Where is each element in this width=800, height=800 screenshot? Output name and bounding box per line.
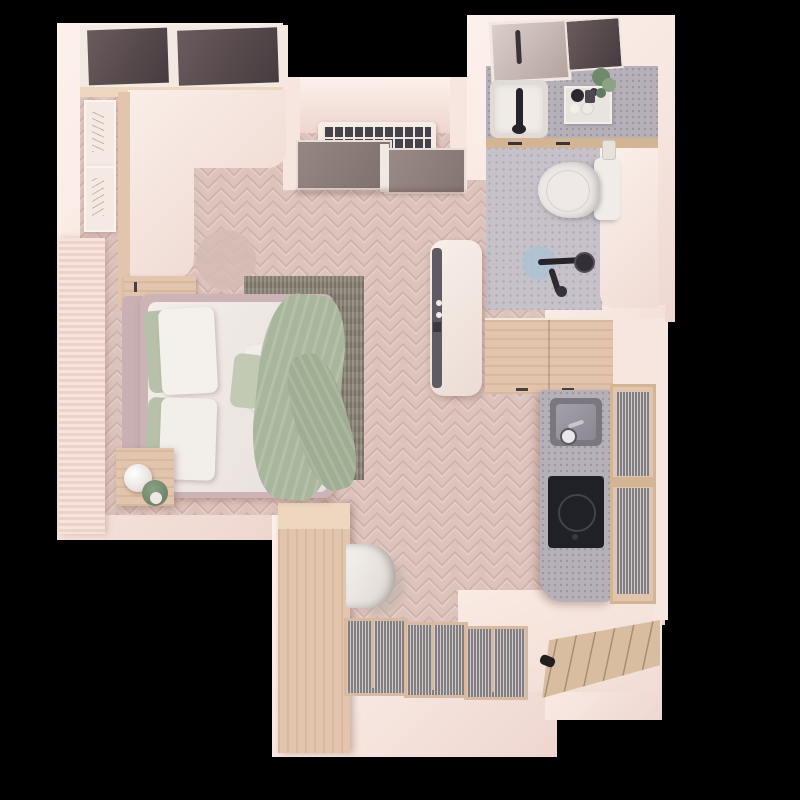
closet-door-stile-3 [491, 628, 494, 692]
art-sketch-1 [92, 112, 104, 152]
soap-jar-dark [571, 89, 584, 102]
wardrobe-knob-2 [436, 312, 442, 318]
toiletry-bottle [602, 140, 616, 160]
art-sketch-2 [92, 178, 104, 216]
mirror [488, 18, 571, 84]
closet-glass-door-3 [464, 626, 528, 700]
kitchen-outer-wall-strip [654, 322, 668, 620]
wardrobe-knob-1 [436, 300, 442, 306]
cup-white-2 [581, 102, 594, 115]
wood-partition-wall [278, 503, 350, 753]
desk-counter-side [128, 90, 194, 280]
floorplan-render [0, 0, 800, 800]
glass-cabinet-mid-rail [610, 477, 656, 487]
cooktop-ring [558, 494, 596, 532]
cooktop-dot [572, 534, 578, 540]
sliding-glass-door-left [296, 140, 392, 190]
fluted-glass-door-lower [616, 488, 650, 594]
sliding-glass-door-right [384, 148, 466, 194]
closet-glass-door-2 [404, 622, 468, 698]
closet-door-stile-2 [431, 624, 434, 690]
shower-head [574, 252, 595, 273]
toilet-seat-line [546, 170, 590, 212]
sliding-door-shadow [296, 189, 464, 195]
closet-door-stile-1 [371, 620, 374, 688]
black-faucet-head [512, 124, 526, 134]
floor-to-ceiling-curtain [59, 238, 105, 534]
wardrobe-lock-plate [433, 322, 441, 332]
sink-faucet-base [560, 428, 577, 445]
desk-cabinet-handle [134, 282, 137, 292]
shower-knob [556, 286, 567, 297]
cabinet-handle-1 [516, 388, 528, 391]
bathroom-dark-window [564, 16, 623, 72]
dispenser-dark [585, 90, 595, 103]
pillow-white-top [158, 307, 218, 396]
drawer-handle-1 [508, 142, 522, 145]
sliding-door-stile [380, 144, 389, 192]
window-pane-2 [177, 27, 279, 85]
nightstand-plant-pot [150, 492, 162, 504]
cabinet-door-seam [548, 320, 550, 392]
window-pane-1 [87, 28, 169, 86]
cup-white-1 [570, 104, 579, 113]
drawer-handle-2 [556, 142, 570, 145]
bathroom-plant-leaf-3 [596, 88, 606, 98]
partition-top-face [278, 503, 350, 529]
tall-wardrobe-dark-door [432, 248, 442, 388]
fluted-glass-door-upper [616, 392, 650, 476]
closet-glass-door-1 [344, 618, 408, 696]
